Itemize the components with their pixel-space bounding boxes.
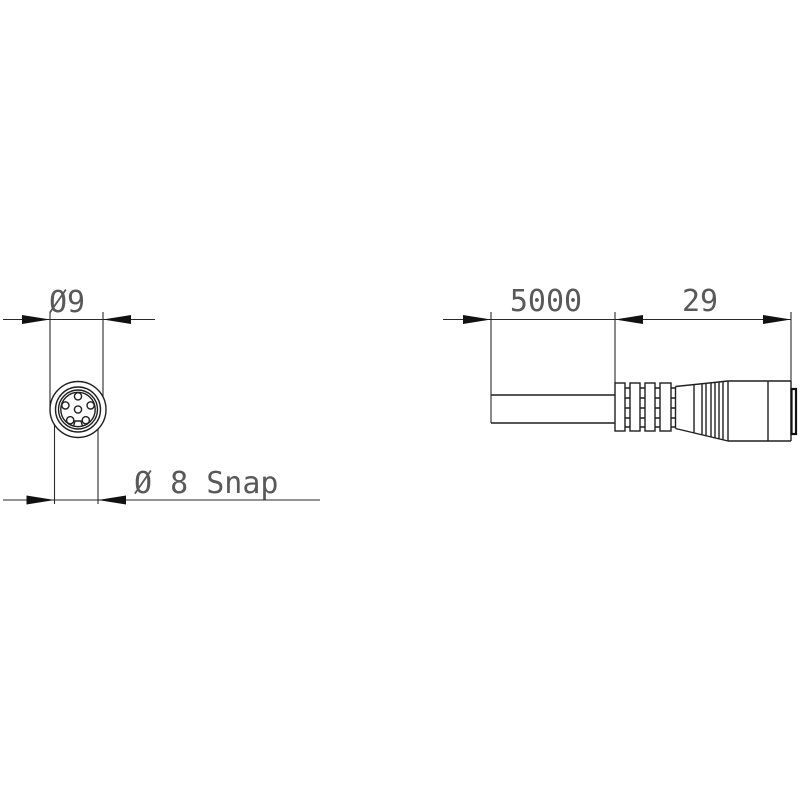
pin-hole-center xyxy=(74,406,81,413)
arrowhead-right-icon xyxy=(22,315,50,324)
pin-hole-upper-right xyxy=(87,402,94,409)
arrowhead-left-icon xyxy=(615,315,643,324)
cable xyxy=(491,395,615,423)
connector-body xyxy=(728,381,796,441)
strain-relief xyxy=(615,383,676,431)
dimension-label-cable-length: 5000 xyxy=(510,284,582,319)
rib xyxy=(630,383,640,431)
arrowhead-left-icon xyxy=(98,496,126,505)
pin-hole-top xyxy=(74,393,81,400)
dimension-label-diameter-9: Ø9 xyxy=(49,285,85,320)
snap-ring-circle xyxy=(56,387,101,432)
groove xyxy=(655,388,660,427)
side-view: 5000 29 xyxy=(443,284,796,441)
end-contact-nub xyxy=(792,389,797,434)
side-view-dimensions: 5000 29 xyxy=(443,284,791,423)
arrowhead-left-icon xyxy=(103,315,131,324)
groove xyxy=(640,388,645,427)
connector-face xyxy=(50,382,106,438)
keyway-notch xyxy=(74,421,83,426)
arrowhead-right-icon xyxy=(463,315,491,324)
rib xyxy=(615,383,625,431)
dimension-label-connector-length: 29 xyxy=(682,284,718,319)
arrowhead-right-icon xyxy=(763,315,791,324)
pin-hole-lower-left xyxy=(67,417,74,424)
front-view: Ø9 Ø 8 Snap xyxy=(3,285,320,505)
technical-drawing-canvas: Ø9 Ø 8 Snap xyxy=(0,0,800,800)
pin-hole-upper-left xyxy=(62,402,69,409)
arrowhead-right-icon xyxy=(27,496,55,505)
front-view-bottom-dimension: Ø 8 Snap xyxy=(3,424,320,505)
rib xyxy=(660,383,671,431)
dimension-label-diameter-8-snap: Ø 8 Snap xyxy=(134,466,279,501)
connector-dimension-drawing: Ø9 Ø 8 Snap xyxy=(0,0,800,800)
taper-cone xyxy=(676,381,729,441)
pin-hole-lower-right xyxy=(82,417,89,424)
groove xyxy=(625,388,630,427)
rib xyxy=(645,383,655,431)
